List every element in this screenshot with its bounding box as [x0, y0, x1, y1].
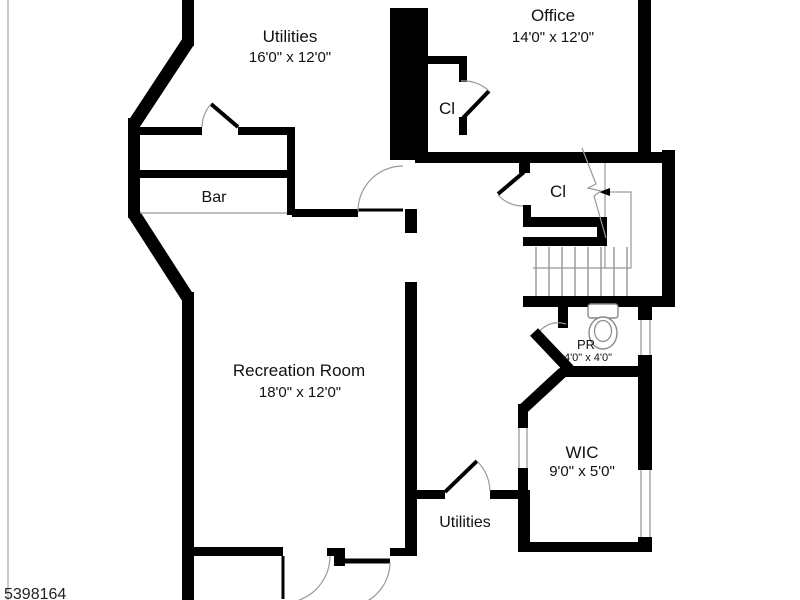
room-label-office: Office — [531, 6, 575, 25]
door-leaf — [498, 172, 524, 194]
closet-mid-walls — [498, 163, 605, 268]
room-label-utilities-top: Utilities — [263, 27, 318, 46]
window — [641, 320, 650, 355]
door-swing-arc — [477, 461, 490, 491]
door-swing-arc — [202, 104, 211, 127]
chimney-block — [390, 8, 428, 160]
stair-direction-line — [533, 192, 631, 268]
door-leaf — [445, 461, 477, 492]
room-label-wic: WIC — [565, 443, 598, 462]
room-dims-utilities-top: 16'0" x 12'0" — [249, 49, 331, 66]
door-leaf — [463, 91, 489, 118]
stair-treads — [536, 247, 627, 296]
staircase — [523, 148, 675, 320]
room-label-closet-mid: Cl — [550, 182, 566, 201]
door-leaf — [211, 104, 238, 127]
room-dims-recreation: 18'0" x 12'0" — [259, 384, 341, 401]
door-swing-arc — [461, 81, 489, 91]
room-label-recreation: Recreation Room — [233, 361, 365, 380]
wall-opening — [519, 428, 527, 468]
floor-plan-drawing: Utilities 16'0" x 12'0" Office 14'0" x 1… — [0, 0, 800, 600]
floor-plan: Utilities 16'0" x 12'0" Office 14'0" x 1… — [0, 0, 800, 600]
room-label-closet-top: Cl — [439, 99, 455, 118]
door-swing-arc — [345, 562, 390, 600]
utilities-bottom-walls — [405, 461, 518, 499]
door-swing-arc — [498, 195, 523, 206]
diagonal-wall — [523, 372, 563, 409]
door-swing-arc — [283, 556, 330, 600]
wic-walls — [518, 372, 652, 552]
room-dims-wic: 9'0" x 5'0" — [549, 463, 615, 480]
room-label-bar: Bar — [202, 189, 228, 206]
room-dims-pr: 4'0" x 4'0" — [564, 352, 612, 364]
listing-id-watermark: 5398164 — [4, 586, 66, 600]
room-label-pr: PR — [577, 337, 595, 352]
room-dims-office: 14'0" x 12'0" — [512, 29, 594, 46]
room-label-utilities-bottom: Utilities — [439, 514, 491, 531]
recreation-bottom-walls — [182, 547, 417, 600]
window — [641, 470, 650, 537]
closet-top-walls — [428, 56, 489, 135]
door-swing-arc — [358, 166, 403, 211]
diagonal-wall — [534, 332, 570, 370]
exterior-walls-left — [128, 0, 194, 600]
